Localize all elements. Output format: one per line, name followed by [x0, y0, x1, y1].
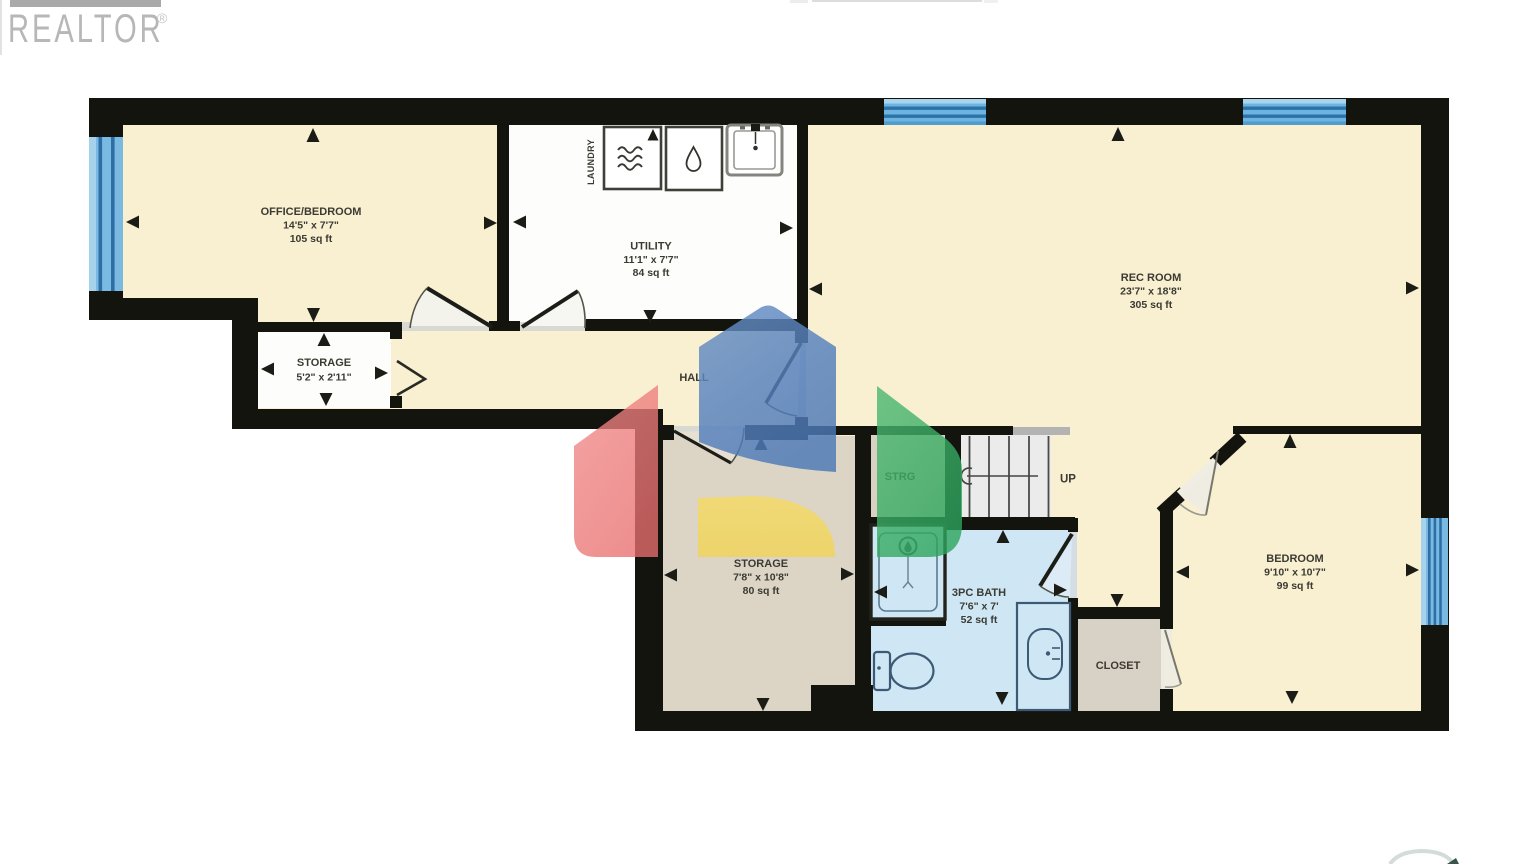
svg-text:BEDROOM: BEDROOM	[1266, 553, 1323, 565]
svg-text:CLOSET: CLOSET	[1096, 660, 1141, 672]
svg-text:305 sq ft: 305 sq ft	[1130, 299, 1173, 311]
svg-text:11'1" x 7'7": 11'1" x 7'7"	[623, 254, 678, 266]
svg-text:UP: UP	[1060, 474, 1076, 486]
svg-text:99 sq ft: 99 sq ft	[1277, 580, 1314, 592]
svg-text:80 sq ft: 80 sq ft	[743, 585, 780, 597]
svg-text:OFFICE/BEDROOM: OFFICE/BEDROOM	[261, 206, 362, 218]
svg-text:REALTOR: REALTOR	[8, 7, 164, 52]
svg-text:7'6" x 7': 7'6" x 7'	[959, 601, 998, 613]
svg-text:3PC BATH: 3PC BATH	[952, 587, 1006, 599]
svg-text:®: ®	[157, 10, 168, 26]
svg-text:7'8" x 10'8": 7'8" x 10'8"	[733, 572, 789, 584]
svg-text:14'5" x 7'7": 14'5" x 7'7"	[283, 220, 339, 232]
svg-text:23'7" x 18'8": 23'7" x 18'8"	[1120, 286, 1182, 298]
svg-text:105 sq ft: 105 sq ft	[290, 233, 333, 245]
svg-text:5'2" x 2'11": 5'2" x 2'11"	[296, 372, 351, 384]
svg-text:84 sq ft: 84 sq ft	[633, 267, 670, 279]
svg-text:UTILITY: UTILITY	[630, 241, 672, 253]
svg-text:STORAGE: STORAGE	[297, 357, 351, 369]
svg-text:LAUNDRY: LAUNDRY	[586, 139, 596, 185]
svg-text:REC ROOM: REC ROOM	[1121, 272, 1182, 284]
svg-text:STORAGE: STORAGE	[734, 558, 788, 570]
svg-text:52 sq ft: 52 sq ft	[961, 614, 998, 626]
svg-text:9'10" x 10'7": 9'10" x 10'7"	[1264, 567, 1326, 579]
